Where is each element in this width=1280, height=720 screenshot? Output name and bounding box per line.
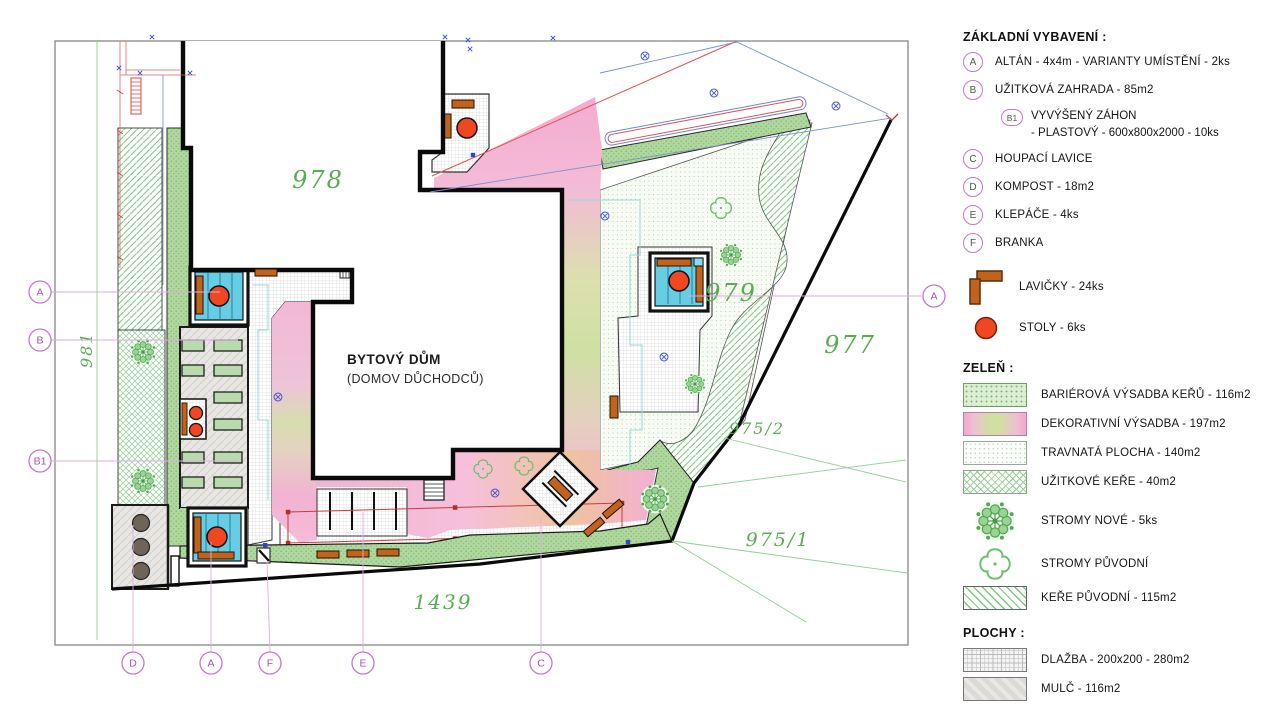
new-tree-icon — [974, 500, 1016, 542]
svg-text:(DOMOV DŮCHODCŮ): (DOMOV DŮCHODCŮ) — [347, 371, 484, 386]
legend-surfaces-title: PLOCHY : — [963, 626, 1275, 640]
svg-text:1439: 1439 — [414, 590, 473, 614]
svg-text:E: E — [359, 658, 366, 670]
mulch-swatch — [963, 677, 1027, 701]
badge-b: B — [963, 80, 983, 100]
legend-swatch-utility-shrubs: UŽITKOVÉ KEŘE - 40m2 — [963, 470, 1275, 494]
lawn-swatch — [963, 441, 1027, 465]
svg-text:C: C — [537, 658, 545, 670]
gazebo-east — [650, 253, 708, 311]
gazebo-sw — [188, 508, 246, 566]
legend-swatch-mulc: MULČ - 116m2 — [963, 677, 1275, 701]
legend-swatch-original-shrubs: KEŘE PŮVODNÍ - 115m2 — [963, 586, 1275, 610]
legend-item-lavicky: LAVIČKY - 24ks — [963, 267, 1275, 307]
legend-greenery-title: ZELEŇ : — [963, 361, 1275, 375]
legend-swatch-barrier: BARIÉROVÁ VÝSADBA KEŘŮ - 116m2 — [963, 383, 1275, 407]
table-icon — [973, 315, 999, 341]
legend-panel: ZÁKLADNÍ VYBAVENÍ : A ALTÁN - 4x4m - VAR… — [963, 30, 1275, 706]
svg-text:D: D — [129, 658, 137, 670]
svg-text:975/2: 975/2 — [729, 419, 785, 438]
original-tree-icon — [978, 547, 1012, 581]
legend-item-altan: A ALTÁN - 4x4m - VARIANTY UMÍSTĚNÍ - 2ks — [963, 52, 1275, 72]
svg-text:981: 981 — [77, 331, 96, 368]
badge-c: C — [963, 149, 983, 169]
svg-text:B1: B1 — [34, 456, 47, 468]
badge-f: F — [963, 233, 983, 253]
site-plan: 978 979 977 975/2 975/1 1439 981 BYTOVÝ … — [20, 25, 960, 705]
carpet-beater-area — [317, 489, 407, 536]
svg-text:A: A — [207, 658, 214, 670]
legend-item-klepace: E KLEPÁČE - 4ks — [963, 205, 1275, 225]
svg-text:A: A — [36, 287, 43, 299]
decorative-band-west — [272, 302, 317, 543]
badge-a: A — [963, 52, 983, 72]
legend-swatch-lawn: TRAVNATÁ PLOCHA - 140m2 — [963, 441, 1275, 465]
legend-item-original-trees: STROMY PŮVODNÍ — [963, 547, 1275, 581]
decorative-planting-swatch — [963, 412, 1027, 436]
bench-icon — [966, 267, 1006, 307]
legend-item-branka: F BRANKA — [963, 233, 1275, 253]
svg-text:978: 978 — [292, 166, 344, 194]
svg-text:977: 977 — [824, 331, 876, 359]
svg-text:BYTOVÝ DŮM: BYTOVÝ DŮM — [347, 351, 441, 367]
legend-item-new-trees: STROMY NOVÉ - 5ks — [963, 500, 1275, 542]
badge-b1: B1 — [1001, 109, 1023, 126]
utility-garden — [180, 327, 248, 508]
svg-text:F: F — [267, 658, 273, 670]
legend-item-houpaci-lavice: C HOUPACÍ LAVICE — [963, 149, 1275, 169]
barrier-shrubs-swatch — [963, 383, 1027, 407]
utility-shrubs-swatch — [963, 470, 1027, 494]
svg-text:A: A — [930, 291, 937, 303]
legend-item-kompost: D KOMPOST - 18m2 — [963, 177, 1275, 197]
compost-area — [112, 505, 179, 589]
badge-d: D — [963, 177, 983, 197]
legend-item-stoly: STOLY - 6ks — [963, 315, 1275, 341]
svg-text:B: B — [36, 335, 43, 347]
legend-equipment-title: ZÁKLADNÍ VYBAVENÍ : — [963, 30, 1275, 44]
original-shrubs-swatch — [963, 586, 1027, 610]
garden-site-plan-page: 978 979 977 975/2 975/1 1439 981 BYTOVÝ … — [0, 0, 1280, 720]
svg-text:979: 979 — [705, 279, 757, 307]
badge-e: E — [963, 205, 983, 225]
paving-swatch — [963, 648, 1027, 672]
svg-text:975/1: 975/1 — [746, 529, 811, 551]
legend-swatch-decorative: DEKORATIVNÍ VÝSADBA - 197m2 — [963, 412, 1275, 436]
legend-swatch-dlazba: DLAŽBA - 200x200 - 280m2 — [963, 648, 1275, 672]
legend-item-uzitkova-zahrada: B UŽITKOVÁ ZAHRADA - 85m2 — [963, 80, 1275, 100]
legend-item-vyvyseny-zahon: B1 VYVÝŠENÝ ZÁHON - PLASTOVÝ - 600x800x2… — [1001, 108, 1275, 141]
